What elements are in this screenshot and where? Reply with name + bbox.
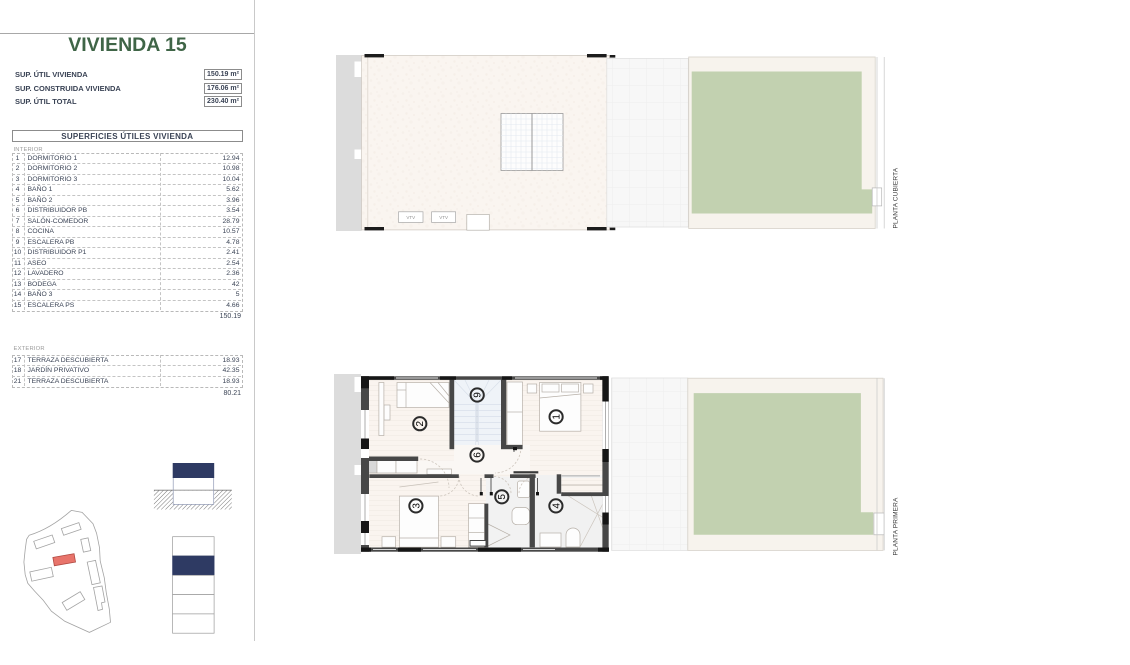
svg-text:PLANTA PRIMERA: PLANTA PRIMERA <box>893 497 900 555</box>
svg-text:1: 1 <box>552 414 563 420</box>
svg-text:6: 6 <box>472 452 483 458</box>
svg-text:5: 5 <box>497 494 508 500</box>
svg-text:VTV: VTV <box>439 215 448 220</box>
svg-text:9: 9 <box>473 392 484 398</box>
svg-text:4: 4 <box>551 503 562 509</box>
svg-text:PLANTA CUBIERTA: PLANTA CUBIERTA <box>893 167 900 228</box>
svg-text:2: 2 <box>415 420 426 426</box>
svg-text:3: 3 <box>411 503 422 509</box>
svg-text:VTV: VTV <box>406 215 415 220</box>
